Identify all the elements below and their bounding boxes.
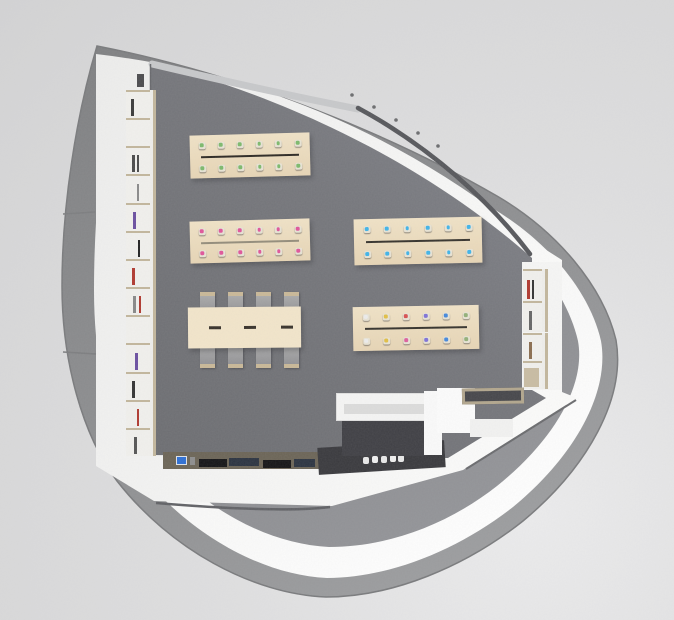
- worktable-pink-stool: [295, 247, 302, 254]
- shelf-cell: [126, 259, 150, 287]
- conference-chair-bottom: [228, 347, 243, 368]
- shelf-item: [139, 296, 142, 313]
- worktable-multicolor-stool: [383, 337, 390, 344]
- desk-inner-dark: [342, 416, 426, 456]
- worktable-pink-stool: [237, 227, 244, 234]
- conference-table-slot: [281, 326, 293, 329]
- alcove-shelving: [523, 269, 548, 332]
- shelf-cell: [126, 343, 150, 371]
- worktable-green-stool: [237, 141, 244, 148]
- worktable-pink-stool: [275, 226, 282, 233]
- shelf-cell: [523, 301, 542, 333]
- sink-left: [229, 458, 259, 466]
- entrance-doormat: [462, 387, 524, 404]
- worktable-green-stool: [256, 140, 263, 147]
- worktable-cyan-cable-slot: [366, 239, 470, 243]
- conference-table-slot: [209, 326, 221, 329]
- worktable-multicolor-stool: [423, 336, 430, 343]
- worktable-pink-stool: [218, 249, 225, 256]
- worktable-green: [189, 132, 310, 178]
- worktable-pink-stool: [199, 250, 206, 257]
- worktable-pink-stool: [217, 227, 224, 234]
- island-item: [363, 457, 369, 464]
- worktable-multicolor-stool: [422, 312, 429, 319]
- worktable-green-stool: [295, 162, 302, 169]
- shelf-cell: [126, 315, 150, 343]
- worktable-pink-stool: [256, 226, 263, 233]
- shelf-cell: [126, 174, 150, 202]
- worktable-pink-stool: [198, 228, 205, 235]
- worktable-cyan-stool: [384, 225, 391, 232]
- shelf-item: [529, 342, 532, 359]
- worktable-multicolor-stool: [442, 312, 449, 319]
- shelf-cell: [126, 400, 150, 428]
- shelf-cell: [126, 287, 150, 315]
- worktable-pink-stool: [237, 249, 244, 256]
- island-item: [372, 456, 378, 463]
- worktable-cyan-stool: [363, 225, 370, 232]
- worktable-green-stool: [217, 141, 224, 148]
- shelf-cell: [126, 203, 150, 231]
- alcove-wood-panel: [524, 368, 539, 387]
- sink-right: [294, 459, 315, 467]
- worktable-green-stool: [294, 139, 301, 146]
- shelf-cell: [126, 118, 150, 146]
- shelf-item: [529, 311, 532, 330]
- worktable-cyan-stool: [364, 250, 371, 257]
- worktable-multicolor-stool: [463, 336, 470, 343]
- worktable-cyan-stool: [384, 250, 391, 257]
- shelf-item: [137, 155, 140, 172]
- worktable-pink-stool: [275, 248, 282, 255]
- worktable-pink-stool: [256, 248, 263, 255]
- worktable-cyan-stool: [404, 250, 411, 257]
- desk-bar-shadow: [344, 404, 432, 414]
- shelf-item: [131, 99, 134, 116]
- worktable-cyan-stool: [425, 249, 432, 256]
- architectural-render: [0, 0, 674, 620]
- worktable-cyan-stool: [445, 224, 452, 231]
- appliance-knob: [190, 457, 195, 465]
- worktable-cyan: [354, 217, 483, 266]
- conference-chair-bottom: [200, 347, 215, 368]
- worktable-pink-cable-slot: [201, 240, 299, 245]
- conference-chair-bottom: [284, 347, 299, 368]
- shelf-cell: [126, 428, 150, 456]
- worktable-green-stool: [198, 142, 205, 149]
- worktable-green-stool: [256, 163, 263, 170]
- worktable-multicolor-cable-slot: [365, 326, 467, 330]
- worktable-multicolor-stool: [362, 313, 369, 320]
- shelf-cell: [126, 231, 150, 259]
- island-item: [398, 455, 404, 462]
- shelf-item: [527, 280, 530, 299]
- shelf-item: [137, 184, 140, 201]
- shelf-cell: [126, 372, 150, 400]
- worktable-pink-stool: [294, 225, 301, 232]
- shelf-item: [135, 353, 138, 370]
- worktable-green-stool: [275, 163, 282, 170]
- shelf-cell: [126, 90, 150, 118]
- shelf-item: [137, 409, 140, 426]
- shelf-cell: [523, 333, 542, 361]
- left-wall-shelving: [126, 90, 156, 456]
- worktable-cyan-stool: [445, 249, 452, 256]
- shelf-item: [133, 212, 136, 229]
- worktable-green-stool: [275, 140, 282, 147]
- worktable-multicolor-stool: [403, 337, 410, 344]
- appliance-screen: [176, 456, 187, 465]
- island-item: [381, 456, 387, 463]
- desk-step: [470, 419, 513, 437]
- wall-vent-slot: [137, 74, 144, 87]
- worktable-multicolor-stool: [363, 337, 370, 344]
- worktable-multicolor-stool: [462, 312, 469, 319]
- worktable-cyan-stool: [404, 225, 411, 232]
- worktable-multicolor-stool: [382, 313, 389, 320]
- island-item: [390, 455, 396, 462]
- worktable-multicolor: [353, 305, 480, 351]
- shelf-item: [532, 280, 535, 299]
- worktable-pink: [189, 218, 310, 263]
- worktable-green-stool: [218, 164, 225, 171]
- shelf-item: [133, 296, 136, 313]
- conference-table: [188, 307, 301, 349]
- cooktop-right: [263, 460, 291, 468]
- conference-table-slot: [244, 326, 256, 329]
- worktable-multicolor-stool: [443, 336, 450, 343]
- cooktop-left: [199, 459, 227, 467]
- shelf-cell: [126, 146, 150, 174]
- worktable-cyan-stool: [465, 223, 472, 230]
- worktable-green-stool: [199, 165, 206, 172]
- shelf-item: [132, 381, 135, 398]
- worktable-cyan-stool: [466, 248, 473, 255]
- worktable-green-cable-slot: [201, 154, 299, 159]
- worktable-multicolor-stool: [402, 313, 409, 320]
- worktable-cyan-stool: [424, 224, 431, 231]
- shelf-item: [134, 437, 137, 454]
- worktable-green-stool: [237, 164, 244, 171]
- shelf-item: [132, 268, 135, 285]
- shelf-item: [138, 240, 141, 257]
- furniture-layer: [0, 0, 674, 620]
- shelf-cell: [523, 269, 542, 301]
- conference-chair-bottom: [256, 347, 271, 368]
- shelf-item: [132, 155, 135, 172]
